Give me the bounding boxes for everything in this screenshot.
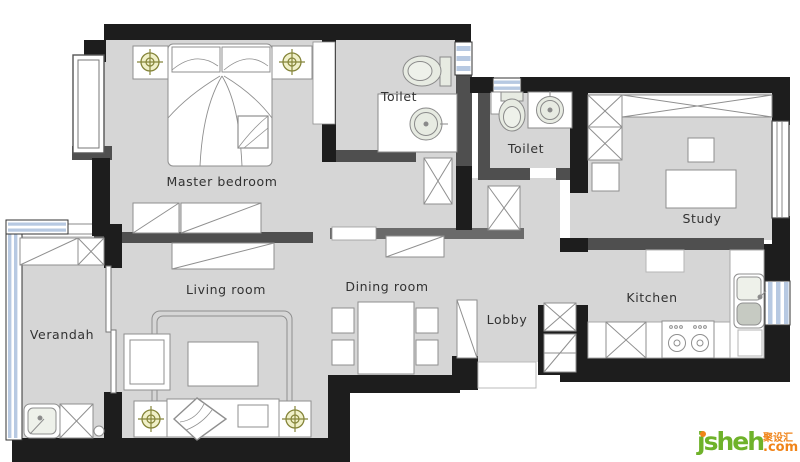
toilet-2-window <box>493 78 521 92</box>
toilet-2-west-wall <box>478 90 490 170</box>
bedroom-living-wall <box>94 232 313 243</box>
toilet-1-wc <box>403 56 451 86</box>
bedroom-wardrobe-nook <box>313 42 335 124</box>
toilet-divider-wall <box>456 74 472 166</box>
study-north-wall <box>578 77 790 93</box>
study-east-wall-bottom <box>772 216 790 246</box>
study-wardrobe-top <box>622 95 772 117</box>
verandah-living-wall-bottom <box>104 392 122 440</box>
study-wardrobe-left <box>588 95 622 160</box>
hall-corridor-wall <box>456 166 472 230</box>
dining-chair <box>416 308 438 333</box>
bay-window <box>73 55 104 153</box>
toilet-1-label: Toilet <box>380 89 417 104</box>
dining-chair <box>332 308 354 333</box>
north-wall <box>104 24 457 40</box>
study-east-wall-top <box>772 93 790 125</box>
kitchen-doorway-floor <box>560 250 588 306</box>
bedroom-wardrobe-right <box>181 203 261 233</box>
kitchen-counter-notch <box>646 250 684 272</box>
toilet-1-window <box>455 42 472 75</box>
dining-chair <box>332 340 354 365</box>
floorplan-svg: Master bedroom Toilet Toilet Study Livin… <box>0 0 800 462</box>
bed-throw-pillow <box>238 116 268 148</box>
entry-door <box>457 300 477 358</box>
logo-domain-suffix: .com <box>763 440 798 455</box>
verandah-living-wall-top <box>104 224 122 268</box>
kitchen-sink <box>734 274 766 328</box>
verandah-cabinet <box>20 238 78 265</box>
study-desk <box>666 170 736 208</box>
laundry-sink <box>24 404 60 438</box>
bedroom-wardrobe-left <box>133 203 179 233</box>
study-side-chair <box>592 163 619 191</box>
kitchen-cabinet <box>606 322 646 358</box>
toilet-2-wc <box>499 92 525 131</box>
verandah-cabinet-bottom <box>60 404 93 438</box>
dining-chair <box>416 340 438 365</box>
coffee-table <box>188 342 258 386</box>
toilet-2-label: Toilet <box>507 141 544 156</box>
sideboard <box>386 236 444 257</box>
lobby-label: Lobby <box>487 312 528 327</box>
south-wall-west <box>12 438 346 462</box>
kitchen-south-wall <box>560 356 790 382</box>
toilet-2-south-wall <box>478 168 530 180</box>
verandah-cabinet-x <box>78 238 104 265</box>
study-kitchen-west-stub <box>560 238 588 252</box>
kitchen-east-wall-top <box>764 244 790 284</box>
study-label: Study <box>682 211 721 226</box>
dining-table <box>358 302 414 374</box>
verandah-label: Verandah <box>30 327 94 342</box>
dining-south-wall <box>330 375 460 393</box>
study-west-wall <box>570 93 588 193</box>
entry-landing <box>478 362 536 388</box>
logo-j-dot-icon <box>700 431 706 437</box>
study-kitchen-wall <box>588 238 764 250</box>
toilet-2-north-wall-west <box>470 77 494 93</box>
logo-brand-text: jsheh <box>697 427 763 457</box>
floor-drain <box>94 426 104 436</box>
kitchen-window <box>765 281 790 325</box>
hallway-cabinet <box>424 158 452 204</box>
toilet-2-north-wall-east <box>520 77 582 93</box>
gas-stove <box>662 321 714 358</box>
entry-west-wall <box>452 356 478 390</box>
dining-room-label: Dining room <box>345 279 428 294</box>
master-bedroom-label: Master bedroom <box>167 174 278 189</box>
study-desk-chair <box>688 138 714 162</box>
dining-north-opening <box>332 227 376 240</box>
shoe-cabinet <box>544 334 576 372</box>
kitchen-east-wall-bottom <box>764 324 790 360</box>
pillow-left <box>172 47 220 72</box>
lobby-cabinet-top <box>544 303 576 331</box>
toilet-1-ne-corner <box>455 24 471 42</box>
toilet-2-fixtures <box>491 91 572 131</box>
study-doorway-floor <box>570 193 588 239</box>
tv-cabinet-drawer <box>238 405 268 427</box>
verandah-corner-window <box>6 220 68 234</box>
tv-wall-cabinet <box>172 243 274 269</box>
toilet-2-south-stub <box>556 168 570 180</box>
armchair <box>124 334 170 390</box>
double-bed <box>168 44 272 166</box>
study-window <box>772 121 789 218</box>
living-room-label: Living room <box>186 282 266 297</box>
kitchen-label: Kitchen <box>626 290 677 305</box>
jsheh-logo: jsheh 聚设汇 .com <box>697 427 797 461</box>
floorplan: Master bedroom Toilet Toilet Study Livin… <box>0 0 800 462</box>
corridor-cabinet <box>488 186 520 230</box>
